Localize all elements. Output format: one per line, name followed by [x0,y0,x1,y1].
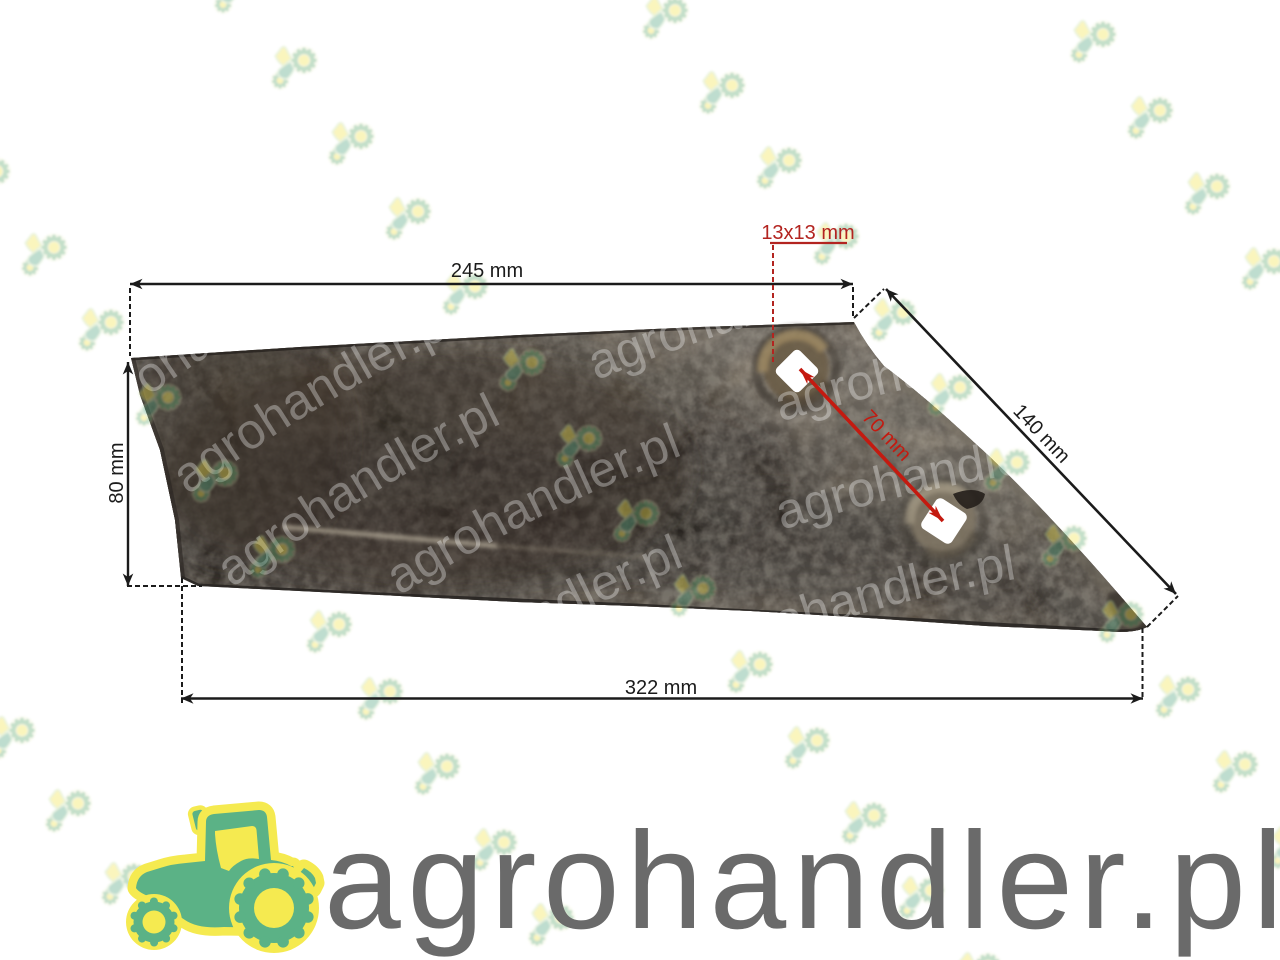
svg-text:agrohandler.pl: agrohandler.pl [994,207,1280,280]
svg-text:agrohandler.pl: agrohandler.pl [1116,515,1280,585]
svg-text:agrohandler.pl: agrohandler.pl [1193,308,1280,387]
svg-text:245 mm: 245 mm [451,260,523,282]
svg-text:agrohandler.pl: agrohandler.pl [837,5,1161,101]
svg-text:13x13 mm: 13x13 mm [761,222,854,244]
svg-text:80 mm: 80 mm [106,442,128,503]
svg-text:agrohandler.pl: agrohandler.pl [0,913,19,960]
svg-text:agrohandler.pl: agrohandler.pl [949,106,1272,185]
svg-text:agrohandler.pl: agrohandler.pl [324,804,1280,958]
svg-text:322 mm: 322 mm [625,677,697,699]
svg-text:agrohandler.pl: agrohandler.pl [1193,412,1280,493]
